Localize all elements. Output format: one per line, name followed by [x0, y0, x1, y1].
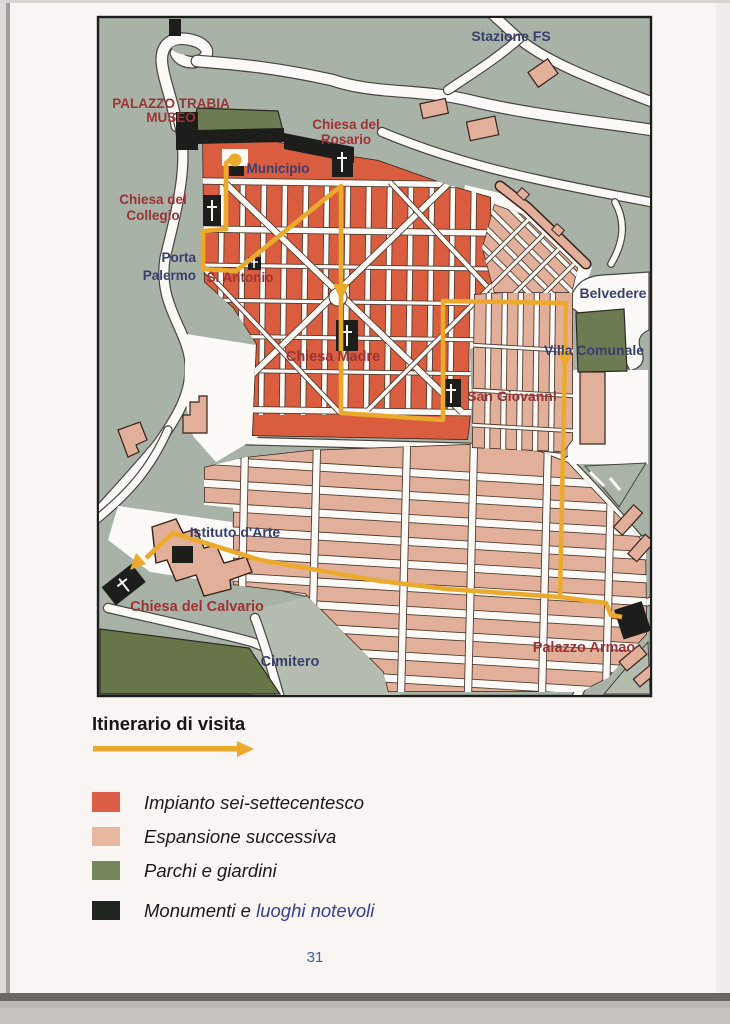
- svg-text:San Giovanni: San Giovanni: [467, 388, 556, 404]
- svg-text:Chiesa del Calvario: Chiesa del Calvario: [130, 599, 264, 615]
- svg-text:Stazione FS: Stazione FS: [471, 28, 550, 44]
- svg-text:Espansione successiva: Espansione successiva: [144, 826, 336, 847]
- svg-text:Impianto sei-settecentesco: Impianto sei-settecentesco: [144, 792, 364, 813]
- svg-text:Monumenti e luoghi notevoli: Monumenti e luoghi notevoli: [144, 900, 375, 921]
- svg-text:Municipio: Municipio: [247, 161, 310, 176]
- svg-text:Chiesa del: Chiesa del: [119, 192, 187, 207]
- svg-text:Parchi e giardini: Parchi e giardini: [144, 860, 278, 881]
- svg-text:Belvedere: Belvedere: [580, 285, 647, 301]
- svg-text:PALAZZO TRABIA: PALAZZO TRABIA: [112, 96, 230, 111]
- svg-text:Villa Comunale: Villa Comunale: [544, 342, 644, 358]
- svg-text:Rosario: Rosario: [321, 132, 371, 147]
- svg-text:Cimitero: Cimitero: [261, 654, 320, 670]
- svg-text:Istituto d'Arte: Istituto d'Arte: [190, 524, 281, 540]
- svg-text:MUSEO: MUSEO: [146, 110, 196, 125]
- svg-text:Porta: Porta: [161, 250, 196, 265]
- svg-text:Collegio: Collegio: [126, 208, 179, 223]
- svg-text:Palazzo Armao: Palazzo Armao: [533, 640, 636, 656]
- svg-text:S. Antonio: S. Antonio: [207, 270, 274, 285]
- svg-text:31: 31: [307, 949, 324, 966]
- svg-text:Palermo: Palermo: [143, 268, 196, 283]
- svg-text:Chiesa Madre: Chiesa Madre: [286, 349, 380, 365]
- svg-text:Chiesa del: Chiesa del: [312, 117, 380, 132]
- svg-text:Itinerario di visita: Itinerario di visita: [92, 713, 246, 734]
